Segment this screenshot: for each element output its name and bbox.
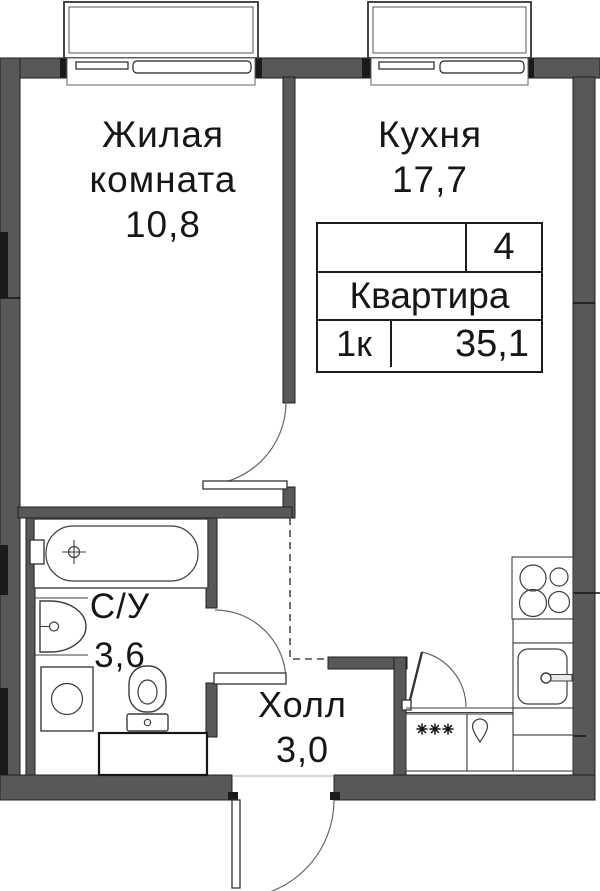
living-room-window-icon [64,2,258,85]
bathroom-name: С/У [55,582,185,631]
info-table-title: Квартира [318,273,541,321]
kitchen-window-icon [368,2,531,85]
bathtub-icon [30,519,208,588]
kitchen-area: 17,7 [330,157,530,202]
kitchen-door-icon [402,652,466,710]
bathroom-label: С/У 3,6 [55,582,185,680]
floor-plan: Жилая комната 10,8 Кухня 17,7 С/У 3,6 Хо… [0,0,600,891]
fridge-snowflakes-icon [406,714,467,771]
hall-area: 3,0 [230,727,375,772]
kitchen-hall-dashed-boundary [290,518,328,659]
info-table-row-floor: 4 [318,224,541,273]
cabinet-icon [99,733,207,775]
stove-icon [512,557,573,619]
living-room-door-icon [203,402,287,489]
living-room-label: Жилая комната 10,8 [33,112,293,247]
info-table-empty-cell [318,224,467,271]
living-room-name-line1: Жилая [33,112,293,157]
kitchen-label: Кухня 17,7 [330,112,530,202]
living-room-name-line2: комната [33,157,293,202]
info-table-row-area: 1к 35,1 [318,321,541,367]
hall-label: Холл 3,0 [230,682,375,772]
bathroom-area: 3,6 [55,631,185,680]
entrance-door-icon [232,776,334,891]
info-table-floor-number: 4 [467,224,541,271]
info-table-total-area: 35,1 [392,321,541,367]
apartment-info-table: 4 Квартира 1к 35,1 [316,222,543,373]
hall-name: Холл [230,682,375,727]
bathroom-door-icon [214,610,286,684]
water-drop-icon [467,714,513,771]
kitchen-name: Кухня [330,112,530,157]
info-table-rooms-count: 1к [318,321,392,367]
living-room-area: 10,8 [33,202,293,247]
